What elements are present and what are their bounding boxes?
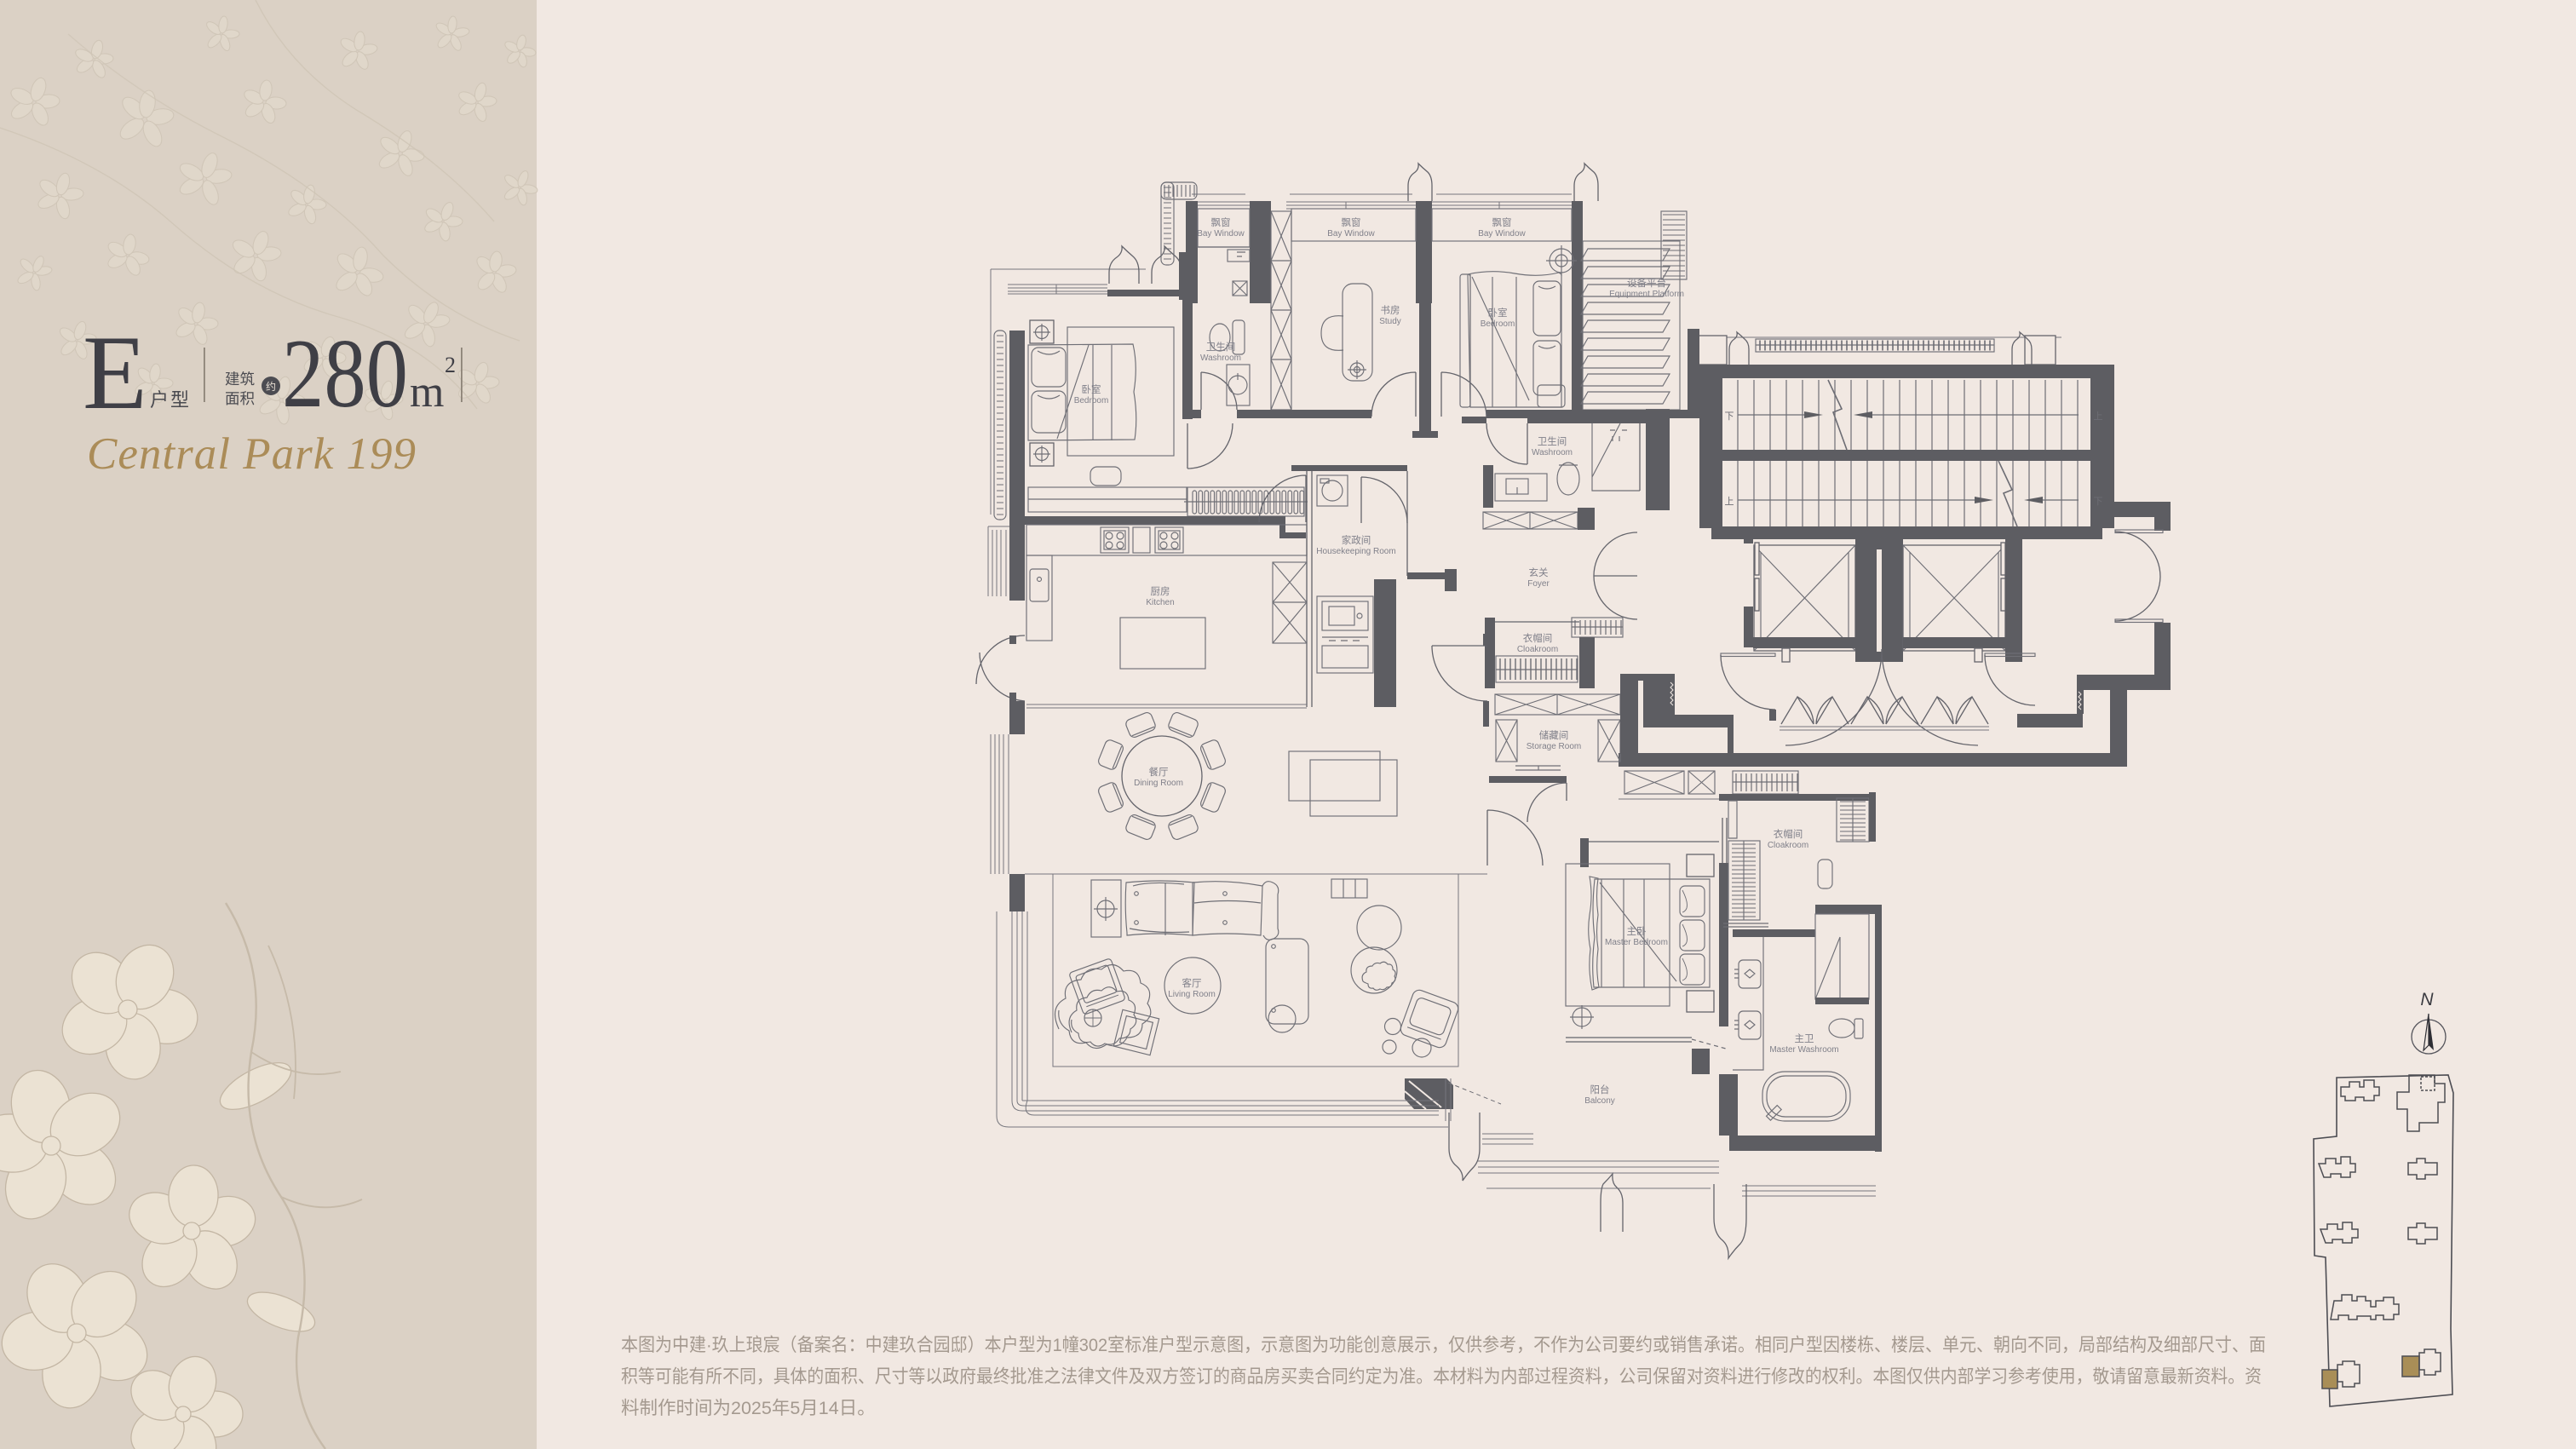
svg-text:N: N — [2420, 990, 2434, 1009]
svg-text:卧室: 卧室 — [1082, 383, 1101, 395]
svg-text:Master Washroom: Master Washroom — [1769, 1045, 1838, 1055]
svg-text:约: 约 — [266, 380, 276, 393]
svg-text:卧室: 卧室 — [1488, 307, 1508, 319]
svg-text:Washroom: Washroom — [1200, 354, 1241, 363]
svg-text:建筑: 建筑 — [225, 371, 255, 388]
svg-text:Storage Room: Storage Room — [1527, 742, 1581, 751]
svg-text:餐厅: 餐厅 — [1149, 766, 1169, 778]
svg-text:Bedroom: Bedroom — [1481, 319, 1515, 329]
svg-text:上: 上 — [1725, 496, 1734, 507]
svg-text:E: E — [83, 314, 147, 431]
svg-text:厨房: 厨房 — [1151, 586, 1170, 597]
svg-text:飘窗: 飘窗 — [1342, 216, 1361, 228]
svg-text:主卫: 主卫 — [1795, 1033, 1814, 1044]
svg-text:家政间: 家政间 — [1342, 534, 1371, 546]
svg-text:Cloakroom: Cloakroom — [1517, 645, 1558, 654]
svg-text:飘窗: 飘窗 — [1211, 216, 1231, 228]
svg-text:玄关: 玄关 — [1529, 566, 1549, 578]
svg-text:设备平台: 设备平台 — [1627, 277, 1666, 289]
svg-text:Study: Study — [1379, 317, 1401, 326]
svg-text:本图为中建·玖上琅宸（备案名：中建玖合园邸）本户型为1幢30: 本图为中建·玖上琅宸（备案名：中建玖合园邸）本户型为1幢302室标准户型示意图，… — [621, 1335, 2266, 1355]
svg-text:储藏间: 储藏间 — [1539, 729, 1569, 741]
svg-text:Living Room: Living Room — [1168, 990, 1216, 999]
svg-text:Bay Window: Bay Window — [1327, 229, 1375, 239]
svg-text:衣帽间: 衣帽间 — [1774, 828, 1803, 840]
svg-text:积等可能有所不同，具体的面积、尺寸等以政府最终批准之法律文件: 积等可能有所不同，具体的面积、尺寸等以政府最终批准之法律文件及双方签订的商品房买… — [621, 1366, 2262, 1387]
svg-text:下: 下 — [2094, 497, 2103, 507]
svg-text:卫生间: 卫生间 — [1538, 435, 1567, 447]
svg-text:280: 280 — [282, 319, 408, 428]
svg-text:卫生间: 卫生间 — [1206, 341, 1236, 353]
svg-text:Dining Room: Dining Room — [1134, 779, 1183, 788]
svg-text:料制作时间为2025年5月14日。: 料制作时间为2025年5月14日。 — [621, 1398, 876, 1418]
svg-text:2: 2 — [445, 353, 456, 377]
svg-text:Foyer: Foyer — [1527, 579, 1550, 589]
svg-text:阳台: 阳台 — [1590, 1084, 1610, 1095]
svg-text:飘窗: 飘窗 — [1492, 216, 1512, 228]
svg-text:户型: 户型 — [150, 389, 191, 411]
svg-text:Bay Window: Bay Window — [1478, 229, 1526, 239]
svg-text:书房: 书房 — [1381, 305, 1400, 316]
svg-text:Central Park 199: Central Park 199 — [87, 429, 417, 479]
svg-text:Washroom: Washroom — [1532, 448, 1573, 457]
svg-text:衣帽间: 衣帽间 — [1523, 632, 1553, 644]
svg-text:Bedroom: Bedroom — [1074, 396, 1109, 405]
svg-text:下: 下 — [1725, 411, 1734, 422]
svg-text:主卧: 主卧 — [1627, 926, 1647, 937]
svg-text:面积: 面积 — [225, 390, 255, 407]
svg-text:m: m — [410, 368, 444, 417]
svg-text:Housekeeping Room: Housekeeping Room — [1316, 547, 1395, 556]
svg-text:Bay Window: Bay Window — [1197, 229, 1245, 239]
svg-text:Cloakroom: Cloakroom — [1768, 841, 1808, 850]
svg-text:Kitchen: Kitchen — [1146, 598, 1174, 607]
svg-text:客厅: 客厅 — [1182, 977, 1202, 989]
svg-text:上: 上 — [2094, 411, 2103, 422]
svg-text:Balcony: Balcony — [1584, 1096, 1615, 1106]
svg-text:Equipment Platform: Equipment Platform — [1609, 290, 1684, 299]
svg-text:Master Bedroom: Master Bedroom — [1605, 938, 1668, 947]
